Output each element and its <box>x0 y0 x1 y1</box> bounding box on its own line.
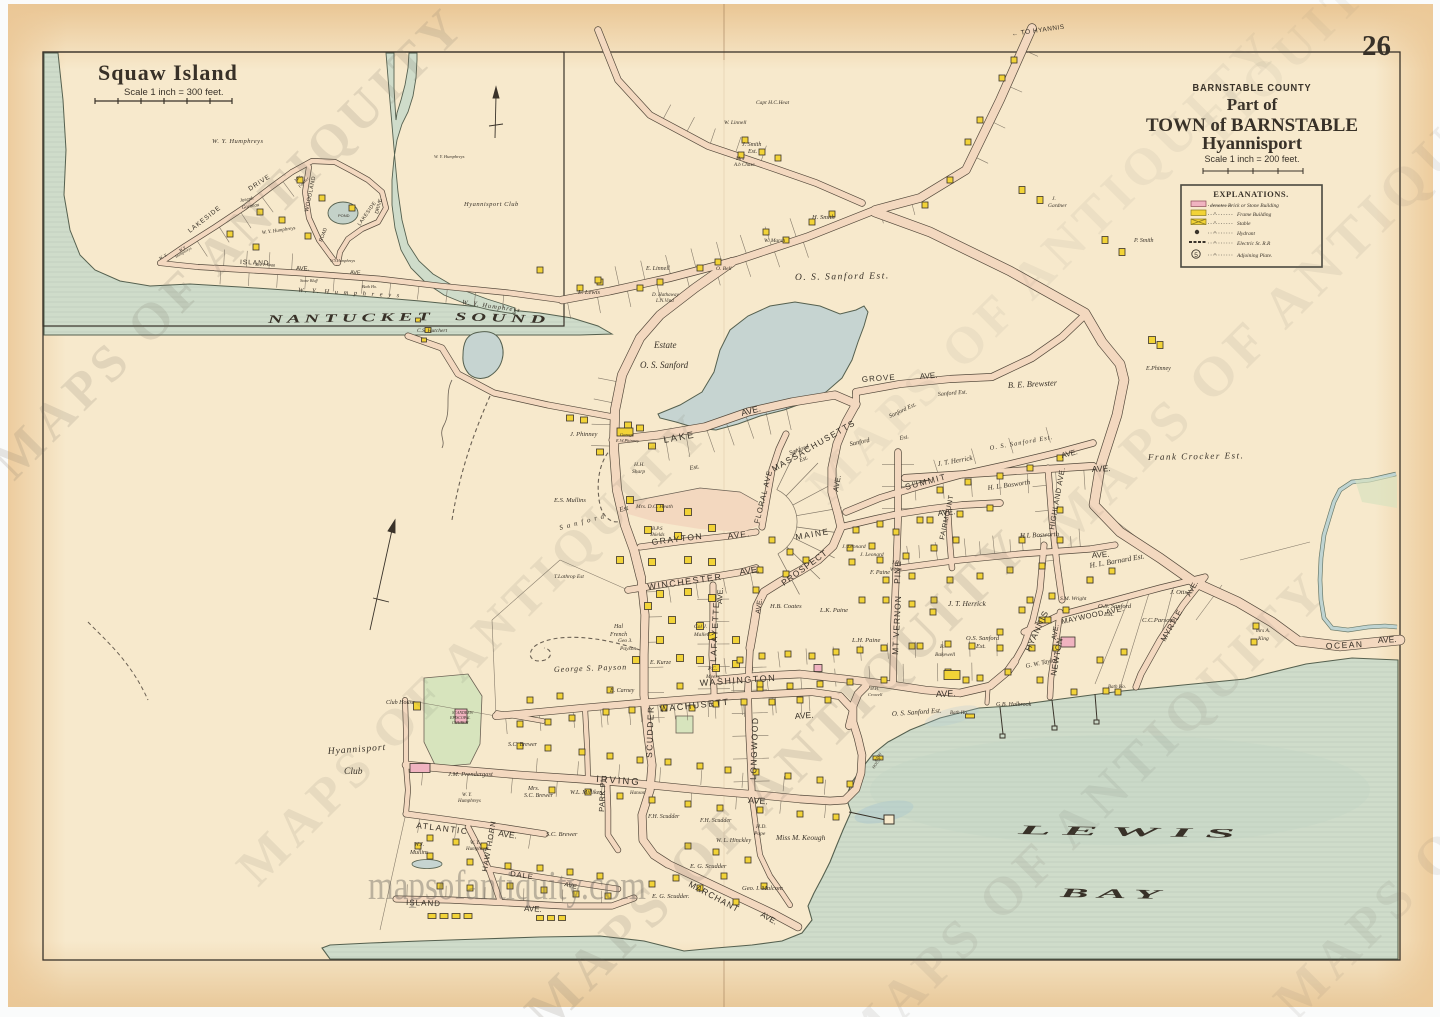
svg-text:Hal: Hal <box>613 624 623 630</box>
svg-text:H. Smith: H. Smith <box>811 214 835 221</box>
svg-text:”: ” <box>1213 221 1216 227</box>
svg-text:Hanson: Hanson <box>629 791 646 796</box>
svg-text:W. Y. Humphreys: W. Y. Humphreys <box>434 154 465 159</box>
svg-text:S.C. Brewer: S.C. Brewer <box>508 742 538 748</box>
svg-text:Electric St. R.R: Electric St. R.R <box>1236 241 1271 247</box>
svg-text:mapsofantiquity.com: mapsofantiquity.com <box>368 862 646 908</box>
svg-text:26: 26 <box>1362 30 1391 62</box>
svg-text:Est.: Est. <box>1103 611 1114 618</box>
svg-text:Mallett.: Mallett. <box>693 632 711 638</box>
svg-text:Mrs: Mrs <box>735 157 744 162</box>
svg-text:Est.: Est. <box>747 149 757 155</box>
svg-text:5: 5 <box>1194 252 1198 259</box>
svg-text:AVE: AVE <box>350 270 361 276</box>
svg-text:G.B. Halbrook: G.B. Halbrook <box>996 702 1032 708</box>
svg-text:L.N.Vind: L.N.Vind <box>655 299 674 304</box>
svg-text:Capt H.C.Heat: Capt H.C.Heat <box>756 100 790 106</box>
svg-text:Estate: Estate <box>653 340 677 350</box>
svg-text:W. Y.: W. Y. <box>470 841 480 846</box>
svg-text:J. Smith: J. Smith <box>742 142 761 148</box>
svg-text:Bath Ho.: Bath Ho. <box>362 284 377 289</box>
svg-text:Geo. I. Malcom: Geo. I. Malcom <box>742 885 783 892</box>
svg-text:P.C.: P.C. <box>707 666 717 672</box>
svg-text:Est.: Est. <box>975 643 986 650</box>
svg-text:W. Linnell: W. Linnell <box>724 120 747 126</box>
svg-text:P. Smith: P. Smith <box>1133 238 1154 244</box>
svg-text:AVE.: AVE. <box>715 587 725 604</box>
svg-text:B A Y: B A Y <box>1057 885 1164 902</box>
svg-text:B.P.S: B.P.S <box>652 527 663 532</box>
svg-text:Col J.: Col J. <box>694 624 707 630</box>
svg-text:Hyannisport Club: Hyannisport Club <box>463 201 519 208</box>
svg-text:Mullins: Mullins <box>409 850 429 856</box>
svg-text:SCUDDER: SCUDDER <box>644 705 656 758</box>
svg-text:H.B. Coates: H.B. Coates <box>769 603 802 610</box>
svg-text:CHURCH: CHURCH <box>452 720 470 725</box>
svg-text:Squaw Island: Squaw Island <box>98 60 238 85</box>
svg-text:J.M. Prendergast: J.M. Prendergast <box>448 771 493 778</box>
svg-text:J. Leonard: J. Leonard <box>860 552 884 558</box>
svg-text:Myers: Myers <box>705 674 720 680</box>
svg-text:A.b Chase: A.b Chase <box>733 163 755 168</box>
svg-text:Scale 1 inch = 200 feet.: Scale 1 inch = 200 feet. <box>1205 154 1300 164</box>
svg-text:O. Bell: O. Bell <box>716 266 732 272</box>
svg-text:Stone Bluff: Stone Bluff <box>300 278 319 283</box>
svg-text:B. Carney: B. Carney <box>610 688 635 694</box>
svg-text:French: French <box>609 632 627 638</box>
svg-text:Mrs.: Mrs. <box>527 786 539 792</box>
svg-text:F.H. Scudder: F.H. Scudder <box>647 814 680 820</box>
svg-text:Hydrant: Hydrant <box>1236 231 1255 237</box>
svg-text:C.S. Hutchert: C.S. Hutchert <box>417 328 448 334</box>
svg-text:J.D.: J.D. <box>892 561 900 566</box>
svg-text:AVE.: AVE. <box>1378 634 1397 645</box>
svg-text:E.Phinney: E.Phinney <box>1145 366 1171 372</box>
svg-text:Adjoining Plate.: Adjoining Plate. <box>1236 253 1272 259</box>
svg-text:O. S. Sanford: O. S. Sanford <box>640 360 689 370</box>
svg-text:”: ” <box>1213 241 1216 247</box>
svg-text:Frame Building: Frame Building <box>1236 212 1272 218</box>
svg-text:W. Y. Humphreys: W. Y. Humphreys <box>212 138 264 145</box>
svg-text:”: ” <box>1213 253 1216 259</box>
svg-text:E. Kurze: E. Kurze <box>649 660 671 666</box>
svg-text:Shields: Shields <box>650 533 664 538</box>
svg-text:White: White <box>890 568 902 573</box>
svg-text:EXPLANATIONS.: EXPLANATIONS. <box>1213 189 1289 199</box>
svg-text:AVE.: AVE. <box>936 688 956 699</box>
svg-text:J. Leonard: J. Leonard <box>842 544 866 550</box>
svg-text:AVE.: AVE. <box>296 266 310 272</box>
svg-text:Stable: Stable <box>1237 221 1251 227</box>
svg-text:Geo 3.: Geo 3. <box>618 638 633 644</box>
svg-text:Bath Ho.: Bath Ho. <box>1108 685 1126 690</box>
svg-text:W. Marsh: W. Marsh <box>764 238 785 244</box>
svg-text:S.C. Brewer: S.C. Brewer <box>524 793 554 799</box>
svg-text:J. Otis: J. Otis <box>1170 589 1187 596</box>
svg-text:J.: J. <box>1052 196 1056 202</box>
svg-text:Bath Ho.: Bath Ho. <box>950 711 968 716</box>
svg-text:W.Y.Humphreys: W.Y.Humphreys <box>330 258 356 263</box>
svg-text:W.J.: W.J. <box>414 842 424 848</box>
svg-text:Payson: Payson <box>619 646 636 652</box>
svg-text:O.S. Sanford: O.S. Sanford <box>966 635 1000 642</box>
svg-text:”: ” <box>1213 212 1216 218</box>
svg-text:S.M. Wright: S.M. Wright <box>1060 596 1087 602</box>
svg-text:Garage: Garage <box>620 432 634 437</box>
svg-text:Mrs. F. Kagg: Mrs. F. Kagg <box>254 263 275 267</box>
svg-text:S.C. Brewer: S.C. Brewer <box>546 831 578 838</box>
svg-text:W. Y.: W. Y. <box>462 793 472 798</box>
svg-text:F. Paine: F. Paine <box>869 570 890 576</box>
svg-text:D. Hathaway: D. Hathaway <box>651 293 679 298</box>
svg-text:Humphreys: Humphreys <box>457 799 481 804</box>
svg-text:L.K. Paine: L.K. Paine <box>819 607 848 614</box>
svg-text:E. Linnell: E. Linnell <box>645 266 670 272</box>
svg-text:W.L. Milliken: W.L. Milliken <box>570 790 602 796</box>
svg-text:POND: POND <box>338 213 350 218</box>
svg-text:denotes Brick or Stone Buildi: denotes Brick or Stone Building <box>1210 203 1279 209</box>
svg-text:”: ” <box>1213 231 1216 237</box>
svg-text:C.C.Parsons: C.C.Parsons <box>1142 617 1176 624</box>
svg-text:Humphreys: Humphreys <box>465 847 489 852</box>
svg-text:L. Lewis: L. Lewis <box>577 289 601 296</box>
svg-text:O. S. Sanford Est.: O. S. Sanford Est. <box>795 270 890 283</box>
svg-text:J. Phinney: J. Phinney <box>570 431 598 438</box>
svg-text:Miss M. Keough: Miss M. Keough <box>775 833 826 842</box>
svg-text:Scale 1 inch = 300 feet.: Scale 1 inch = 300 feet. <box>124 87 224 98</box>
svg-text:OCEAN: OCEAN <box>1326 639 1364 651</box>
svg-text:E.W.Phinney: E.W.Phinney <box>615 438 639 443</box>
svg-text:O.S. Sanford: O.S. Sanford <box>1098 603 1132 610</box>
